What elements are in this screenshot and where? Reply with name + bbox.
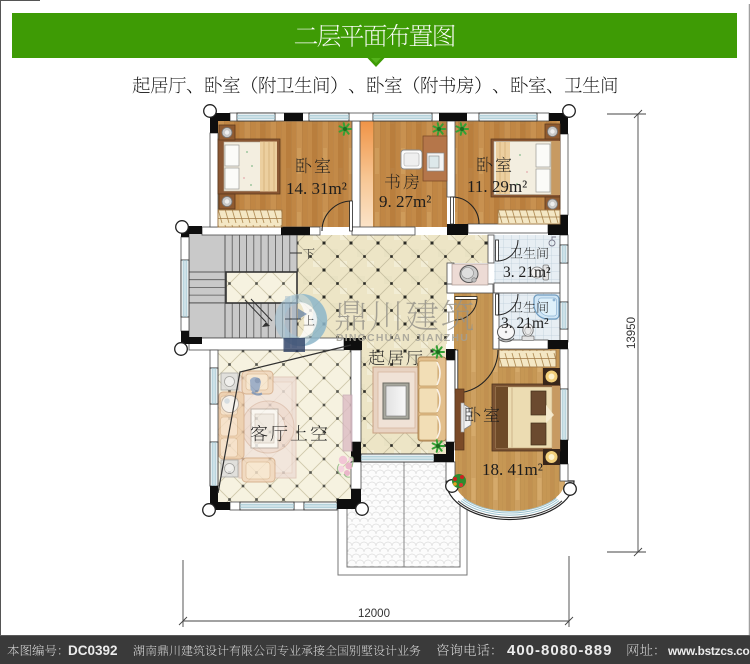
svg-text:DINGCHUAN JIANZHU: DINGCHUAN JIANZHU — [336, 332, 469, 344]
svg-text:18. 41m²: 18. 41m² — [482, 460, 543, 479]
svg-text:14. 31m²: 14. 31m² — [286, 179, 347, 198]
svg-text:3. 21m²: 3. 21m² — [501, 315, 549, 332]
svg-text:9. 27m²: 9. 27m² — [379, 192, 431, 211]
svg-text:3. 21m²: 3. 21m² — [503, 264, 551, 281]
svg-text:www.bstzcs.com: www.bstzcs.com — [667, 644, 750, 658]
svg-text:11. 29m²: 11. 29m² — [467, 177, 527, 196]
svg-text:13950: 13950 — [626, 317, 638, 349]
svg-text:400-8080-889: 400-8080-889 — [507, 642, 612, 659]
svg-text:DC0392: DC0392 — [68, 643, 118, 658]
svg-text:12000: 12000 — [358, 608, 390, 620]
